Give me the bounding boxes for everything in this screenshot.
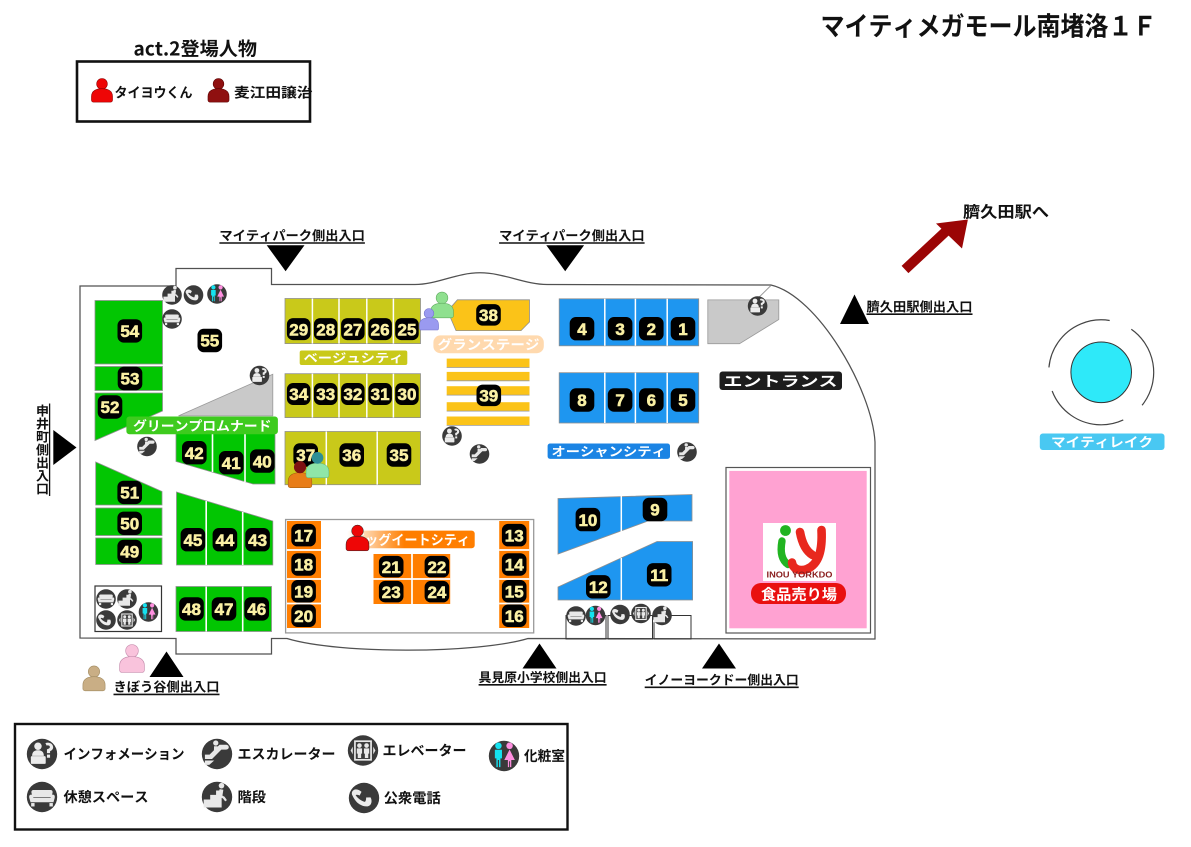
svg-text:19: 19 — [294, 582, 313, 601]
svg-text:20: 20 — [294, 607, 313, 626]
svg-text:12: 12 — [589, 578, 608, 597]
svg-text:50: 50 — [120, 515, 139, 534]
svg-text:43: 43 — [248, 531, 267, 550]
svg-text:9: 9 — [650, 501, 659, 520]
svg-text:44: 44 — [215, 531, 234, 550]
svg-text:29: 29 — [289, 320, 308, 339]
svg-text:54: 54 — [120, 322, 139, 341]
svg-text:27: 27 — [343, 320, 362, 339]
svg-text:34: 34 — [289, 385, 308, 404]
svg-text:32: 32 — [343, 385, 362, 404]
svg-text:38: 38 — [479, 306, 498, 325]
svg-text:INOU YORKDO: INOU YORKDO — [767, 570, 833, 580]
svg-text:14: 14 — [505, 556, 524, 575]
svg-text:49: 49 — [120, 543, 139, 562]
svg-text:33: 33 — [316, 385, 335, 404]
svg-text:15: 15 — [505, 582, 524, 601]
svg-text:25: 25 — [398, 320, 417, 339]
svg-text:7: 7 — [615, 391, 624, 410]
svg-text:53: 53 — [121, 370, 140, 389]
svg-text:5: 5 — [678, 391, 687, 410]
svg-text:24: 24 — [427, 583, 446, 602]
svg-text:16: 16 — [505, 607, 524, 626]
svg-text:31: 31 — [371, 385, 390, 404]
svg-text:52: 52 — [101, 398, 120, 417]
svg-text:55: 55 — [200, 332, 219, 351]
svg-text:11: 11 — [650, 566, 668, 585]
svg-text:10: 10 — [578, 511, 597, 530]
svg-text:23: 23 — [382, 583, 401, 602]
svg-text:1: 1 — [678, 320, 687, 339]
svg-text:8: 8 — [577, 391, 586, 410]
svg-text:17: 17 — [294, 526, 313, 545]
svg-text:18: 18 — [294, 556, 313, 575]
svg-text:45: 45 — [183, 531, 202, 550]
svg-text:48: 48 — [182, 600, 201, 619]
svg-text:21: 21 — [382, 558, 401, 577]
svg-text:3: 3 — [615, 320, 624, 339]
svg-text:6: 6 — [647, 391, 656, 410]
svg-text:42: 42 — [185, 444, 204, 463]
svg-text:26: 26 — [371, 320, 390, 339]
svg-text:13: 13 — [505, 526, 524, 545]
svg-text:4: 4 — [577, 320, 587, 339]
svg-text:46: 46 — [247, 600, 266, 619]
svg-text:28: 28 — [316, 320, 335, 339]
svg-text:35: 35 — [390, 446, 409, 465]
svg-text:22: 22 — [427, 558, 446, 577]
svg-text:30: 30 — [398, 385, 417, 404]
svg-text:41: 41 — [222, 454, 241, 473]
svg-text:47: 47 — [215, 600, 234, 619]
svg-text:39: 39 — [479, 387, 498, 406]
svg-text:51: 51 — [120, 484, 139, 503]
svg-text:2: 2 — [647, 320, 656, 339]
svg-text:40: 40 — [253, 452, 272, 471]
svg-text:36: 36 — [342, 446, 361, 465]
